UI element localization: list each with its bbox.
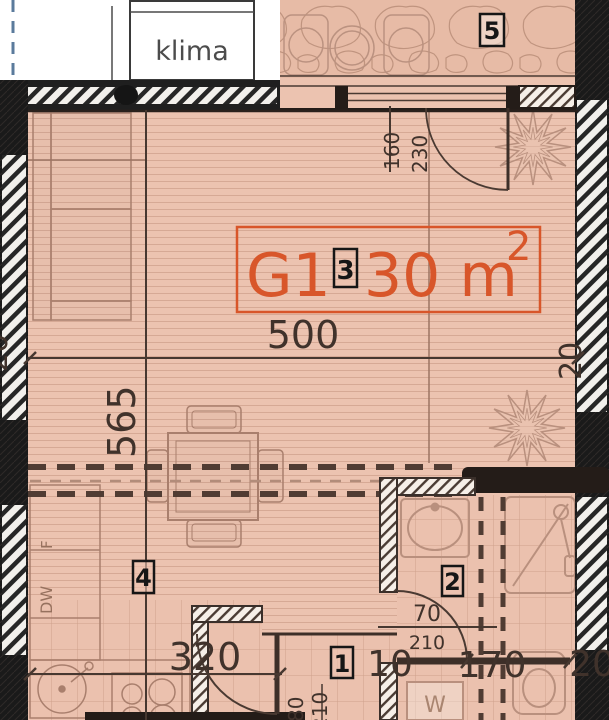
- dim-bath-door-h: 210: [409, 632, 445, 654]
- unit-name: G1: [246, 241, 331, 311]
- kitchen-number: 4: [135, 564, 152, 592]
- entry-number: 1: [334, 650, 351, 678]
- dim-seg-170: 170: [458, 645, 527, 686]
- dim-room-width: 500: [267, 313, 340, 357]
- dim-balcony-door-w: 160: [380, 132, 404, 170]
- unit-area: 30 m: [364, 241, 518, 311]
- dim-wall-bottom-right: 20: [569, 644, 609, 685]
- dim-seg-10: 10: [367, 644, 413, 685]
- floorplan: G1 3 30 m 2 5 4 2 1 klima F DW W 500 565…: [0, 0, 609, 720]
- dim-wall-right: 20: [554, 342, 589, 380]
- dim-kitchen-run: 320: [169, 635, 242, 679]
- fridge-label: F: [38, 540, 56, 549]
- terrace-stone-floor: [280, 0, 575, 78]
- dining-table: [168, 433, 258, 520]
- sofa: [33, 113, 131, 320]
- dim-bath-door-w: 70: [413, 602, 441, 627]
- klima-label: klima: [155, 36, 229, 67]
- floorplan-drawing: G1 3 30 m 2 5 4 2 1 klima F DW W 500 565…: [0, 0, 609, 720]
- unit-area-exponent: 2: [506, 224, 531, 270]
- zone-number: 3: [336, 256, 354, 286]
- bathroom-top-wall: [462, 467, 609, 493]
- dim-wall-left: 20: [0, 334, 15, 372]
- dim-entry-door-h: 210: [308, 692, 332, 720]
- dim-balcony-door-h: 230: [408, 135, 432, 173]
- dim-room-depth: 565: [100, 385, 144, 458]
- bathroom-number: 2: [444, 568, 461, 596]
- washer-label: W: [424, 693, 446, 718]
- wall-conduit: [114, 85, 138, 105]
- dishwasher-label: DW: [37, 586, 56, 614]
- terrace-number: 5: [484, 17, 501, 45]
- chair-top: [187, 406, 241, 433]
- dim-entry-door-w: 80: [284, 697, 308, 720]
